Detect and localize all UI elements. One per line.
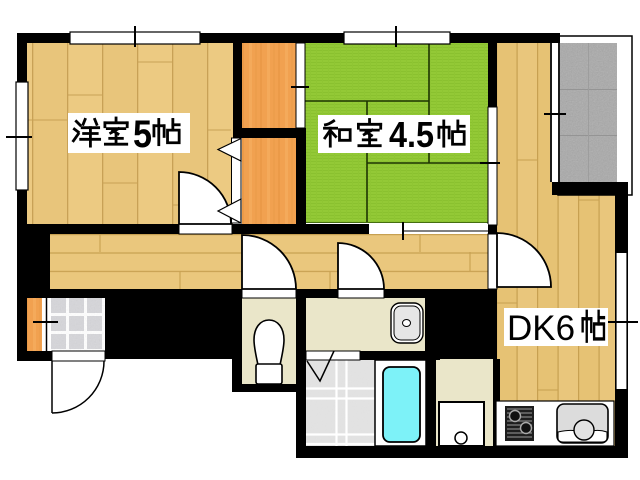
svg-text:4.5: 4.5 xyxy=(389,114,434,155)
svg-text:5: 5 xyxy=(133,113,152,156)
svg-text:DK6: DK6 xyxy=(507,309,575,348)
